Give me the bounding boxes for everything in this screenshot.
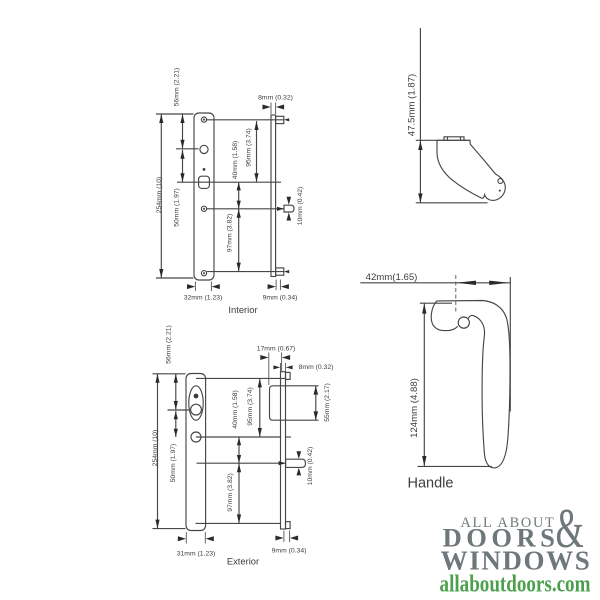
svg-text:47.5mm (1.87): 47.5mm (1.87) bbox=[407, 74, 418, 136]
svg-text:32mm (1.23): 32mm (1.23) bbox=[184, 295, 223, 302]
svg-text:55mm (2.17): 55mm (2.17) bbox=[324, 383, 331, 422]
svg-text:95mm (3.74): 95mm (3.74) bbox=[247, 387, 254, 426]
svg-text:97mm (3.82): 97mm (3.82) bbox=[227, 473, 234, 512]
svg-text:9mm (0.34): 9mm (0.34) bbox=[272, 548, 307, 555]
svg-text:56mm (2.21): 56mm (2.21) bbox=[174, 68, 181, 107]
svg-text:50mm (1.97): 50mm (1.97) bbox=[174, 188, 181, 227]
svg-text:40mm (1.58): 40mm (1.58) bbox=[232, 390, 239, 429]
svg-text:10mm (0.42): 10mm (0.42) bbox=[307, 447, 314, 486]
svg-text:17mm (0.67): 17mm (0.67) bbox=[257, 346, 296, 353]
svg-text:124mm (4.88): 124mm (4.88) bbox=[409, 378, 420, 438]
svg-text:254mm (10): 254mm (10) bbox=[156, 177, 163, 214]
svg-text:Interior: Interior bbox=[228, 304, 257, 315]
svg-text:42mm(1.65): 42mm(1.65) bbox=[366, 272, 418, 283]
svg-text:Handle: Handle bbox=[408, 476, 454, 492]
svg-text:50mm (1.97): 50mm (1.97) bbox=[170, 444, 177, 483]
svg-text:8mm (0.32): 8mm (0.32) bbox=[299, 364, 334, 371]
svg-text:40mm (1.58): 40mm (1.58) bbox=[232, 141, 239, 180]
svg-text:97mm (3.82): 97mm (3.82) bbox=[227, 214, 234, 253]
svg-text:56mm (2.21): 56mm (2.21) bbox=[166, 325, 173, 364]
svg-text:10mm (0.42): 10mm (0.42) bbox=[297, 187, 304, 226]
svg-text:Exterior: Exterior bbox=[227, 556, 259, 567]
svg-text:95mm (3.74): 95mm (3.74) bbox=[246, 128, 253, 167]
svg-text:8mm (0.32): 8mm (0.32) bbox=[258, 95, 293, 102]
svg-text:31mm (1.23): 31mm (1.23) bbox=[177, 551, 216, 558]
svg-text:9mm (0.34): 9mm (0.34) bbox=[263, 295, 298, 302]
svg-text:allaboutdoors.com: allaboutdoors.com bbox=[440, 571, 591, 597]
svg-text:254mm (10): 254mm (10) bbox=[152, 430, 159, 467]
